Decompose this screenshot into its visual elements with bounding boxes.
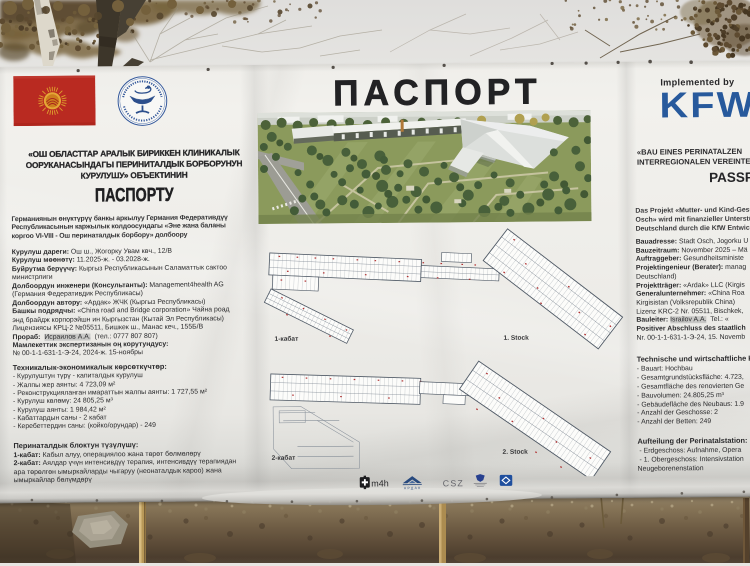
svg-text:АРДАК: АРДАК bbox=[404, 486, 422, 490]
svg-text:2. Stock: 2. Stock bbox=[502, 449, 528, 456]
svg-text:CSZ: CSZ bbox=[443, 478, 464, 488]
svg-text:m4h: m4h bbox=[371, 478, 389, 488]
svg-text:2-кабат: 2-кабат bbox=[272, 454, 297, 462]
svg-text:1-кабат: 1-кабат bbox=[274, 335, 299, 343]
svg-text:1. Stock: 1. Stock bbox=[503, 335, 529, 342]
